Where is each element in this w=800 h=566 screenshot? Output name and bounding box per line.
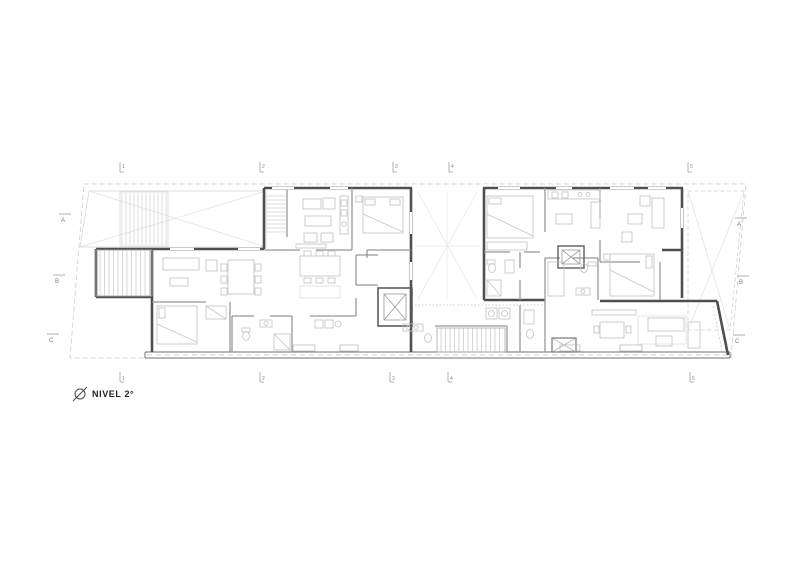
stair-exterior-left — [96, 250, 152, 296]
level-marker-icon — [73, 387, 87, 401]
elevator-x-icon — [384, 294, 406, 320]
ramp-hatch — [122, 193, 166, 245]
windows-left — [170, 185, 414, 280]
grid-label: 1 — [122, 376, 125, 382]
south-facade-band — [145, 352, 730, 358]
grid-label: C — [735, 339, 740, 345]
grid-label: 4 — [451, 164, 454, 170]
grid-label: 3 — [392, 376, 395, 382]
courtyard-star-icon — [415, 192, 480, 299]
terrace-left-void — [80, 191, 266, 247]
page-title: NIVEL 2° — [92, 389, 134, 399]
furniture-right — [487, 190, 700, 348]
grid-label: C — [49, 338, 54, 344]
grid-label: 2 — [262, 376, 265, 382]
grid-markers-left: A B C — [47, 214, 71, 344]
elevator-shaft-left — [378, 288, 412, 326]
elevator-shaft-right — [558, 246, 584, 268]
central-courtyard — [415, 192, 545, 305]
grid-label: A — [61, 218, 65, 224]
south-openings-left — [293, 345, 358, 351]
apartment-block-left — [96, 185, 414, 352]
furniture-left — [157, 196, 403, 344]
title-block: NIVEL 2° — [73, 387, 134, 401]
floor-plan-page: 1 2 3 4 5 1 2 3 4 5 A B C A B C — [0, 0, 800, 566]
stair-main-right — [437, 328, 505, 352]
grid-label: 1 — [122, 164, 125, 170]
grid-label: A — [737, 222, 741, 228]
terrace-left-cross-icon — [80, 191, 266, 247]
grid-label: 4 — [450, 376, 453, 382]
windows-right — [498, 185, 685, 228]
grid-label: B — [55, 279, 59, 285]
apartment-block-right — [403, 185, 728, 355]
grid-label: 5 — [692, 376, 695, 382]
grid-markers-right: A B C — [733, 218, 749, 345]
stair-interior-left — [266, 196, 286, 232]
grid-markers-top: 1 2 3 4 5 — [120, 162, 693, 172]
grid-markers-bottom: 1 2 3 4 5 — [120, 372, 695, 382]
elevator-x-icon — [562, 250, 580, 264]
grid-label: 2 — [262, 164, 265, 170]
grid-label: B — [739, 280, 743, 286]
floor-plan-drawing: 1 2 3 4 5 1 2 3 4 5 A B C A B C — [0, 0, 800, 566]
grid-label: 3 — [395, 164, 398, 170]
grid-label: 5 — [690, 164, 693, 170]
